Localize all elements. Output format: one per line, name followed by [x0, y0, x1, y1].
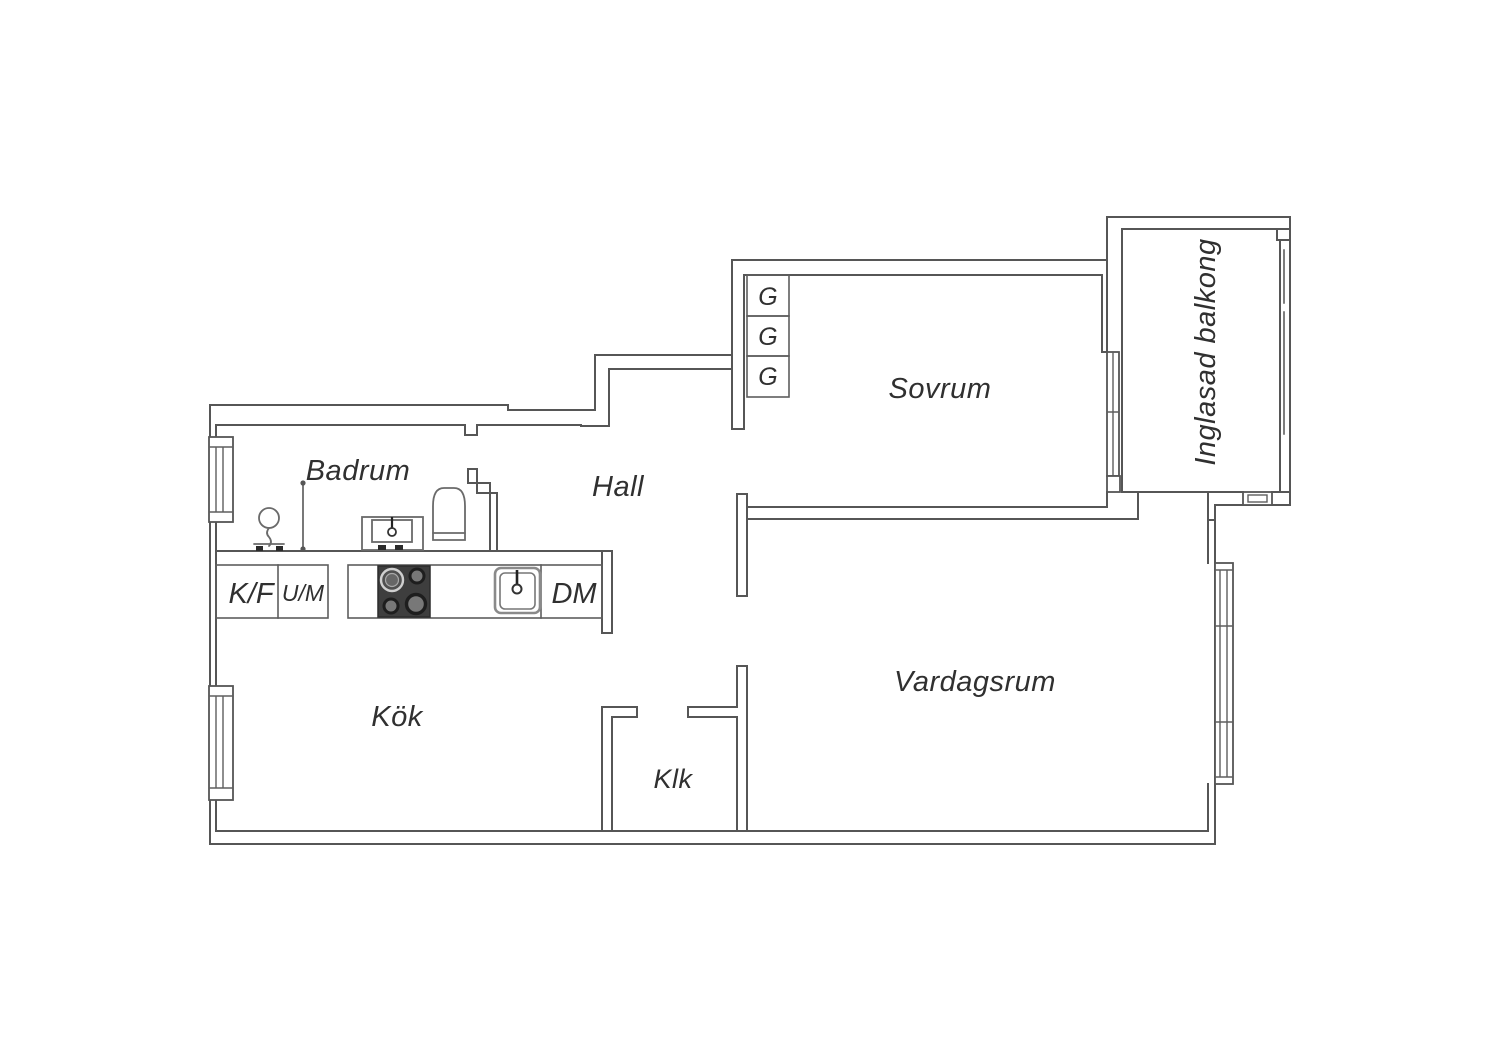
- outer-inner-face-top: [216, 369, 732, 435]
- bedroom-livingroom-wall: [747, 492, 1138, 519]
- room-label-kitchen: Kök: [371, 701, 423, 733]
- room-label-hall: Hall: [592, 471, 645, 503]
- bedroom-balcony-door: [1107, 352, 1120, 492]
- stove: [378, 566, 430, 617]
- wardrobe-label-3: G: [758, 363, 777, 391]
- bathroom-step-wall-b: [477, 469, 497, 551]
- room-label-bathroom: Badrum: [306, 455, 411, 487]
- wardrobe-label-2: G: [758, 323, 777, 351]
- kitchen-counter: K/F U/M DM: [216, 565, 602, 618]
- hall-livingroom-pier: [737, 494, 747, 596]
- kitchen-right-wall: [602, 551, 612, 633]
- floor-plan-page: G G G K/F U/M DM: [0, 0, 1500, 1060]
- oven-micro-label: U/M: [282, 580, 325, 606]
- toilet: [433, 488, 465, 540]
- kitchen-sink: [495, 568, 540, 613]
- livingroom-ne-step: [1208, 492, 1215, 831]
- faucet-head: [513, 585, 522, 594]
- washbasin: [362, 517, 423, 550]
- wardrobe-label-1: G: [758, 283, 777, 311]
- dishwasher-label: DM: [551, 578, 597, 610]
- windows: [209, 352, 1272, 800]
- bathroom-fixtures: [254, 480, 465, 551]
- room-label-closet: Klk: [653, 764, 693, 794]
- bathroom-step-wall-a: [468, 469, 490, 551]
- fridge-freezer-label: K/F: [228, 578, 275, 610]
- balcony-corner-pier: [1277, 229, 1290, 240]
- floor-plan-drawing: G G G K/F U/M DM: [0, 0, 1500, 1060]
- wardrobe-cabinets: G G G: [747, 275, 789, 397]
- closet-left-wall: [602, 707, 637, 831]
- shower-partition: [300, 480, 305, 551]
- burner-medium: [407, 595, 426, 614]
- room-label-livingroom: Vardagsrum: [894, 666, 1056, 698]
- room-label-bedroom: Sovrum: [889, 373, 992, 405]
- shower-fixture: [254, 508, 284, 551]
- burner-small-1: [410, 569, 424, 583]
- closet-right-wall: [688, 666, 747, 831]
- kitchen-window-upper: [209, 437, 233, 522]
- balcony-bottom-window: [1243, 492, 1272, 505]
- burner-small-2: [384, 599, 398, 613]
- room-label-balcony: Inglasad balkong: [1190, 238, 1222, 465]
- kitchen-window-lower: [209, 686, 233, 800]
- livingroom-window: [1215, 563, 1233, 784]
